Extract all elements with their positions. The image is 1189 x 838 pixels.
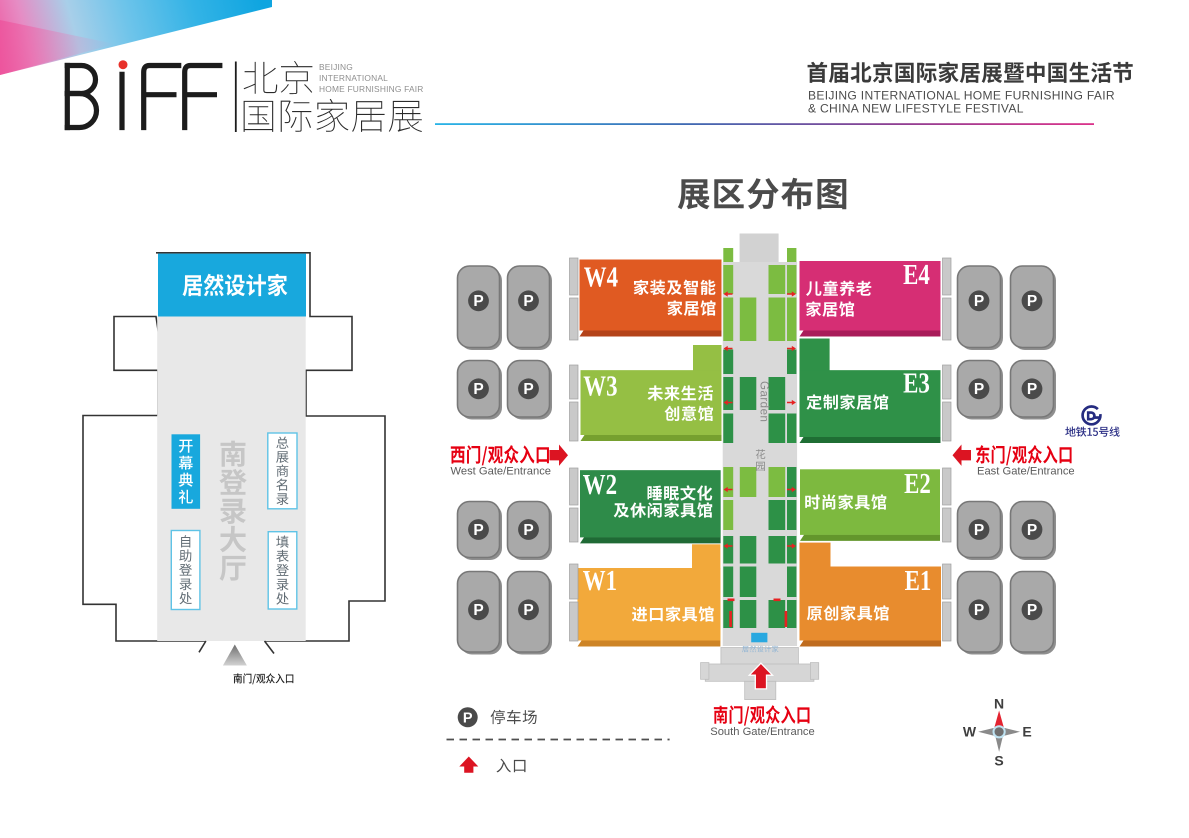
svg-text:BEIJING INTERNATIONAL HOME FUR: BEIJING INTERNATIONAL HOME FURNISHING FA… <box>808 89 1115 103</box>
svg-text:P: P <box>523 602 533 619</box>
svg-text:East Gate/Entrance: East Gate/Entrance <box>977 466 1075 478</box>
svg-text:P: P <box>473 522 483 539</box>
svg-text:E: E <box>1022 724 1031 740</box>
svg-text:P: P <box>974 381 984 398</box>
svg-text:INTERNATIONAL: INTERNATIONAL <box>319 73 388 83</box>
svg-text:P: P <box>523 522 533 539</box>
svg-text:P: P <box>473 602 483 619</box>
svg-text:HOME FURNISHING FAIR: HOME FURNISHING FAIR <box>319 84 424 94</box>
svg-text:P: P <box>523 293 533 310</box>
svg-text:W: W <box>963 724 977 740</box>
svg-text:P: P <box>1027 381 1037 398</box>
svg-text:P: P <box>974 522 984 539</box>
svg-text:P: P <box>473 293 483 310</box>
svg-text:P: P <box>473 381 483 398</box>
svg-text:West Gate/Entrance: West Gate/Entrance <box>451 466 552 478</box>
svg-text:P: P <box>463 711 473 727</box>
svg-text:P: P <box>1027 602 1037 619</box>
svg-text:P: P <box>523 381 533 398</box>
svg-text:South Gate/Entrance: South Gate/Entrance <box>710 726 814 738</box>
svg-text:Garden: Garden <box>758 381 770 422</box>
svg-text:P: P <box>1027 522 1037 539</box>
svg-text:& CHINA NEW LIFESTYLE FESTIVAL: & CHINA NEW LIFESTYLE FESTIVAL <box>808 102 1024 116</box>
svg-text:P: P <box>974 602 984 619</box>
svg-text:P: P <box>974 293 984 310</box>
svg-text:P: P <box>1027 293 1037 310</box>
svg-text:S: S <box>994 753 1003 769</box>
svg-text:N: N <box>994 696 1004 712</box>
svg-text:BEIJING: BEIJING <box>319 62 353 72</box>
